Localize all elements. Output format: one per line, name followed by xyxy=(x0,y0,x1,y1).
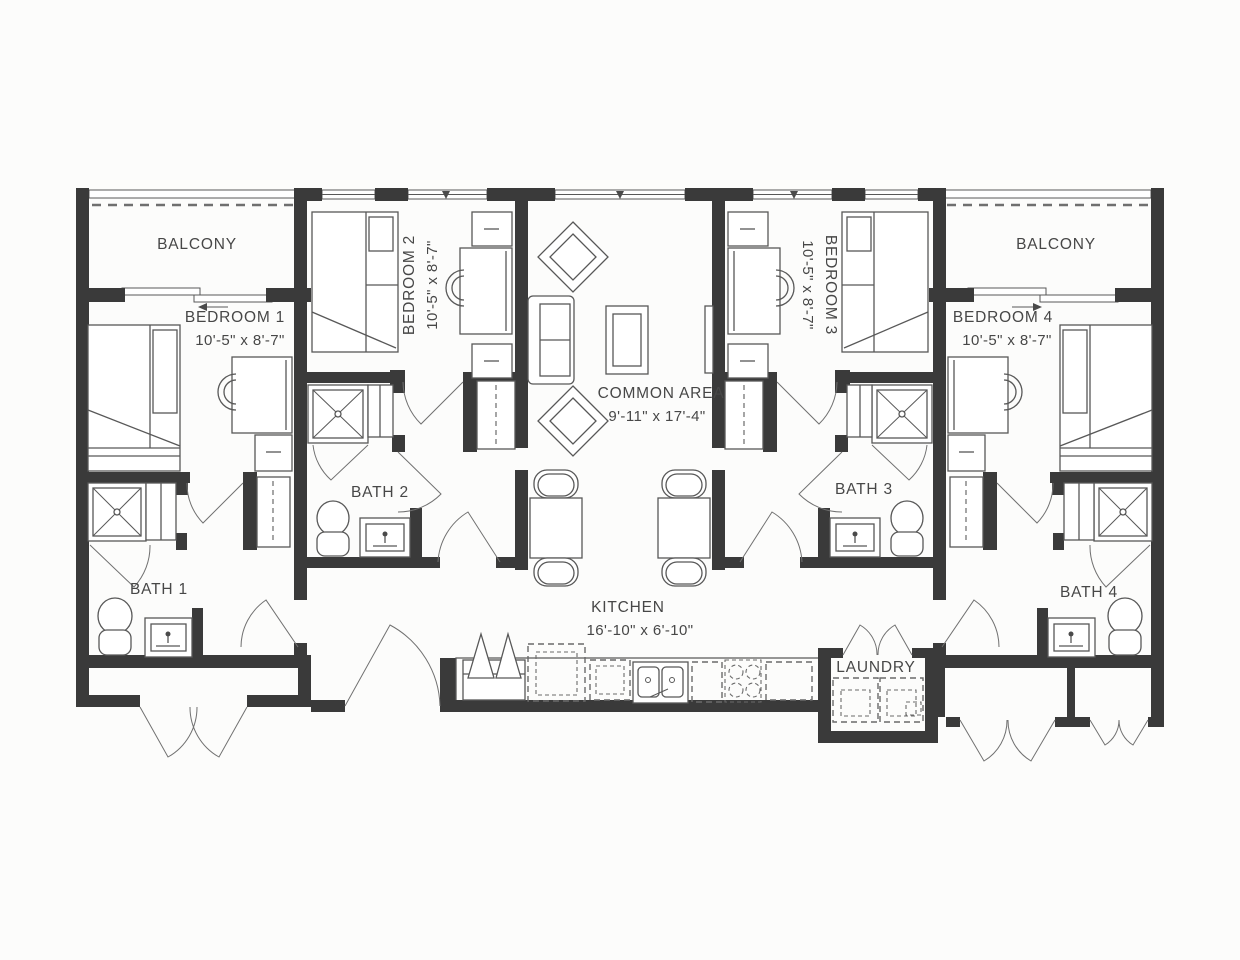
faucet-icon xyxy=(166,632,171,637)
room-label-bath1: BATH 1 xyxy=(130,581,188,598)
shower-drain xyxy=(335,411,341,417)
door-arc-bedroom4 xyxy=(997,483,1053,523)
door-arc-entry-right xyxy=(1119,720,1148,745)
door-arc-entry-right xyxy=(1008,720,1055,761)
door-arc-shower2 xyxy=(313,445,368,480)
door-arc-entry-right xyxy=(1090,720,1119,745)
desk-bedroom4 xyxy=(948,357,1022,433)
room-label-bedroom4: BEDROOM 4 xyxy=(953,309,1053,326)
wall-segment xyxy=(1067,668,1075,717)
nightstand-bedroom1 xyxy=(255,435,292,471)
bed-bedroom2 xyxy=(312,212,398,352)
toilet-bowl xyxy=(1108,598,1142,634)
desk xyxy=(460,248,512,334)
dining-set-right xyxy=(658,470,710,586)
sliding-door-panel xyxy=(122,288,200,295)
room-dims-kitchen: 16'-10" x 6'-10" xyxy=(587,622,694,639)
toilet-bowl xyxy=(98,598,132,634)
bed-bedroom4 xyxy=(1060,325,1152,471)
wall-segment xyxy=(832,188,865,201)
wall-segment xyxy=(76,188,89,707)
range-burner xyxy=(746,683,760,697)
room-label-common-area: COMMON AREA xyxy=(598,385,725,402)
shower-drain xyxy=(1120,509,1126,515)
range-burner xyxy=(729,683,743,697)
wall-segment xyxy=(983,472,997,550)
laundry-detail xyxy=(906,702,921,715)
balcony-railing xyxy=(89,190,296,198)
room-dims-bedroom3: 10'-5" x 8'-7" xyxy=(799,240,816,330)
door-arc-shower3 xyxy=(872,445,927,480)
door-arc-entry-left xyxy=(190,707,247,757)
wall-segment xyxy=(392,435,405,452)
wall-segment xyxy=(1037,608,1048,657)
faucet-icon xyxy=(1069,632,1074,637)
desk xyxy=(948,357,1008,433)
door-arc-entry-right xyxy=(960,720,1007,761)
wall-segment xyxy=(298,655,311,707)
drying-rack xyxy=(496,634,521,678)
nightstand xyxy=(255,435,292,471)
dryer-inner xyxy=(887,690,916,716)
wall-segment xyxy=(800,557,946,568)
room-label-laundry: LAUNDRY xyxy=(836,659,915,676)
balcony-railing xyxy=(944,190,1151,198)
armchair xyxy=(538,222,608,292)
room-label-bedroom2: BEDROOM 2 xyxy=(401,235,418,335)
door-arc-hall4 xyxy=(942,600,999,647)
room-label-kitchen: KITCHEN xyxy=(591,599,665,616)
wall-segment xyxy=(463,372,477,452)
door-arc-bedroom1 xyxy=(187,483,243,523)
door-arc-hall3 xyxy=(740,512,802,562)
faucet-icon xyxy=(853,532,858,537)
bed-bedroom1 xyxy=(88,325,180,471)
wall-segment xyxy=(311,700,345,712)
desk-bedroom1 xyxy=(218,357,292,433)
door-arc-bedroom2 xyxy=(403,382,463,424)
washer-inner xyxy=(841,690,870,716)
tv-console xyxy=(705,306,713,373)
wall-segment xyxy=(912,648,937,658)
wall-segment xyxy=(818,731,937,743)
sliding-door-panel xyxy=(194,295,272,302)
range-burner xyxy=(729,665,743,679)
wall-segment xyxy=(818,648,831,743)
drying-rack xyxy=(468,634,494,678)
wall-segment xyxy=(410,508,422,558)
wall-segment xyxy=(712,557,744,568)
shower-drain xyxy=(899,411,905,417)
dishwasher-inner xyxy=(596,666,624,694)
room-label-balcony-left: BALCONY xyxy=(157,236,237,253)
room-dims-bedroom1: 10'-5" x 8'-7" xyxy=(195,332,285,349)
wall-segment xyxy=(712,470,725,570)
nightstand-bedroom4 xyxy=(948,435,985,471)
wall-segment xyxy=(835,435,848,452)
toilet-tank xyxy=(891,532,923,556)
washer xyxy=(833,678,878,722)
wall-segment xyxy=(515,470,528,570)
wall-segment xyxy=(515,188,528,448)
wall-segment xyxy=(818,508,830,558)
nightstand xyxy=(948,435,985,471)
sliding-door-panel xyxy=(1040,295,1118,302)
wall-segment xyxy=(818,648,843,658)
door-arc-entry-left xyxy=(140,707,197,757)
door-arc-bath2 xyxy=(398,452,441,512)
wall-segment xyxy=(243,472,257,550)
range-burner xyxy=(746,665,760,679)
room-label-bedroom3: BEDROOM 3 xyxy=(822,235,839,335)
wall-segment xyxy=(76,695,140,707)
desk xyxy=(728,248,780,334)
desk xyxy=(232,357,292,433)
desk-bedroom3 xyxy=(728,248,794,334)
door-arc-shower4 xyxy=(1090,545,1150,587)
counter-appliance xyxy=(766,662,812,700)
wall-segment xyxy=(1115,288,1164,302)
dining-table xyxy=(530,498,582,558)
floor-plan-page: BALCONY BALCONY BEDROOM 1 10'-5" x 8'-7"… xyxy=(0,0,1240,960)
dining-set-left xyxy=(530,470,582,586)
dining-table xyxy=(658,498,710,558)
wall-segment xyxy=(176,533,187,550)
wall-segment xyxy=(294,188,307,600)
desk-bedroom2 xyxy=(446,248,512,334)
door-arc-hall2 xyxy=(438,512,500,562)
kitchen-counter xyxy=(456,634,818,703)
bed-pillow xyxy=(153,330,177,413)
room-dims-common-area: 9'-11" x 17'-4" xyxy=(608,408,705,425)
bed-pillow xyxy=(369,217,393,251)
room-label-balcony-right: BALCONY xyxy=(1016,236,1096,253)
door-arc-laundry xyxy=(878,625,912,655)
wall-segment xyxy=(848,372,937,383)
bed-bedroom3 xyxy=(842,212,928,352)
bed-pillow xyxy=(847,217,871,251)
door-arc-hall1 xyxy=(241,600,298,647)
wall-segment xyxy=(375,188,408,201)
room-label-bath2: BATH 2 xyxy=(351,484,409,501)
room-label-bath3: BATH 3 xyxy=(835,481,893,498)
wall-segment xyxy=(712,188,725,448)
wall-segment xyxy=(303,372,392,383)
door-arc-bedroom3 xyxy=(777,382,837,424)
wall-segment xyxy=(294,557,440,568)
sliding-door-panel xyxy=(968,288,1046,295)
wall-segment xyxy=(192,608,203,657)
wall-segment xyxy=(76,288,125,302)
wall-segment xyxy=(933,188,946,600)
shower-drain xyxy=(114,509,120,515)
wall-segment xyxy=(1053,533,1064,550)
floor-plan-image: BALCONY BALCONY BEDROOM 1 10'-5" x 8'-7"… xyxy=(0,0,1240,960)
door-arc-kitchen xyxy=(345,625,440,706)
wall-segment xyxy=(933,668,945,717)
room-label-bedroom1: BEDROOM 1 xyxy=(185,309,285,326)
toilet-tank xyxy=(317,532,349,556)
wall-segment xyxy=(1055,717,1090,727)
wall-segment xyxy=(1151,188,1164,727)
room-dims-bedroom4: 10'-5" x 8'-7" xyxy=(962,332,1052,349)
toilet-tank xyxy=(99,630,131,655)
laundry-appliances xyxy=(833,678,923,722)
faucet-icon xyxy=(383,532,388,537)
toilet-bowl xyxy=(317,501,349,535)
wall-segment xyxy=(946,717,960,727)
wall-segment xyxy=(496,557,528,568)
range xyxy=(725,660,761,702)
toilet-tank xyxy=(1109,630,1141,655)
bath1-fixtures xyxy=(88,477,290,657)
oven-cabinet xyxy=(692,662,722,702)
coffee-table xyxy=(606,306,648,374)
bed-pillow xyxy=(1063,330,1087,413)
wall-segment xyxy=(1148,717,1164,727)
wall-segment xyxy=(763,372,777,452)
bath4-fixtures xyxy=(950,477,1152,657)
room-label-bath4: BATH 4 xyxy=(1060,584,1118,601)
room-dims-bedroom2: 10'-5" x 8'-7" xyxy=(424,240,441,330)
door-arc-laundry xyxy=(843,625,877,655)
toilet-bowl xyxy=(891,501,923,535)
wall-segment xyxy=(440,658,456,712)
